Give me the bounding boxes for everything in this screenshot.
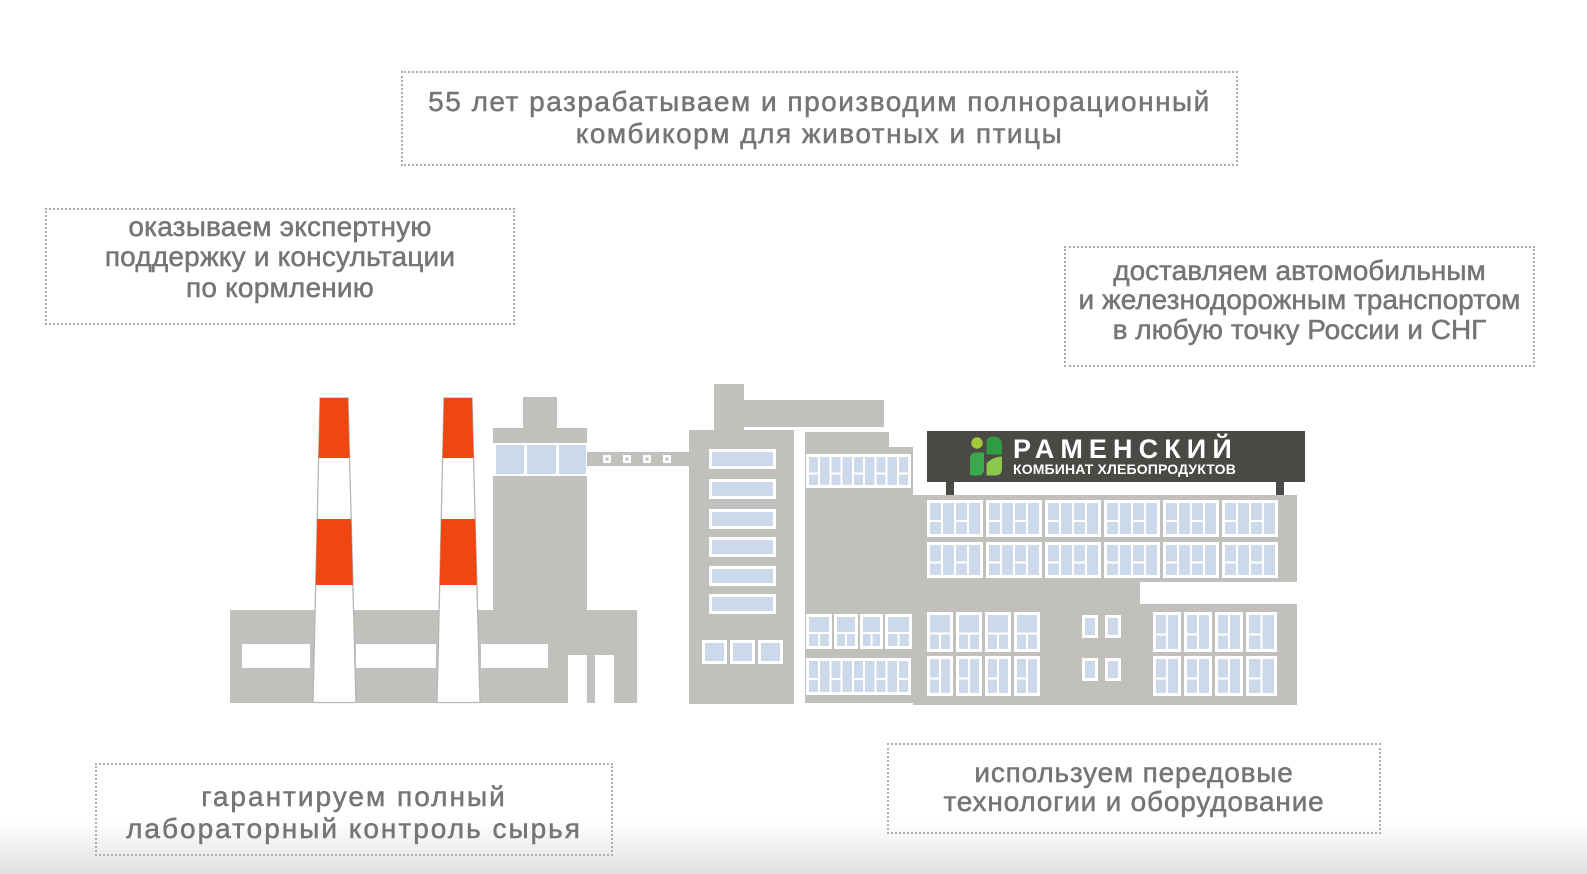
- svg-text:РАМЕНСКИЙ: РАМЕНСКИЙ: [1013, 433, 1238, 464]
- svg-text:КОМБИНАТ ХЛЕБОПРОДУКТОВ: КОМБИНАТ ХЛЕБОПРОДУКТОВ: [1013, 461, 1236, 477]
